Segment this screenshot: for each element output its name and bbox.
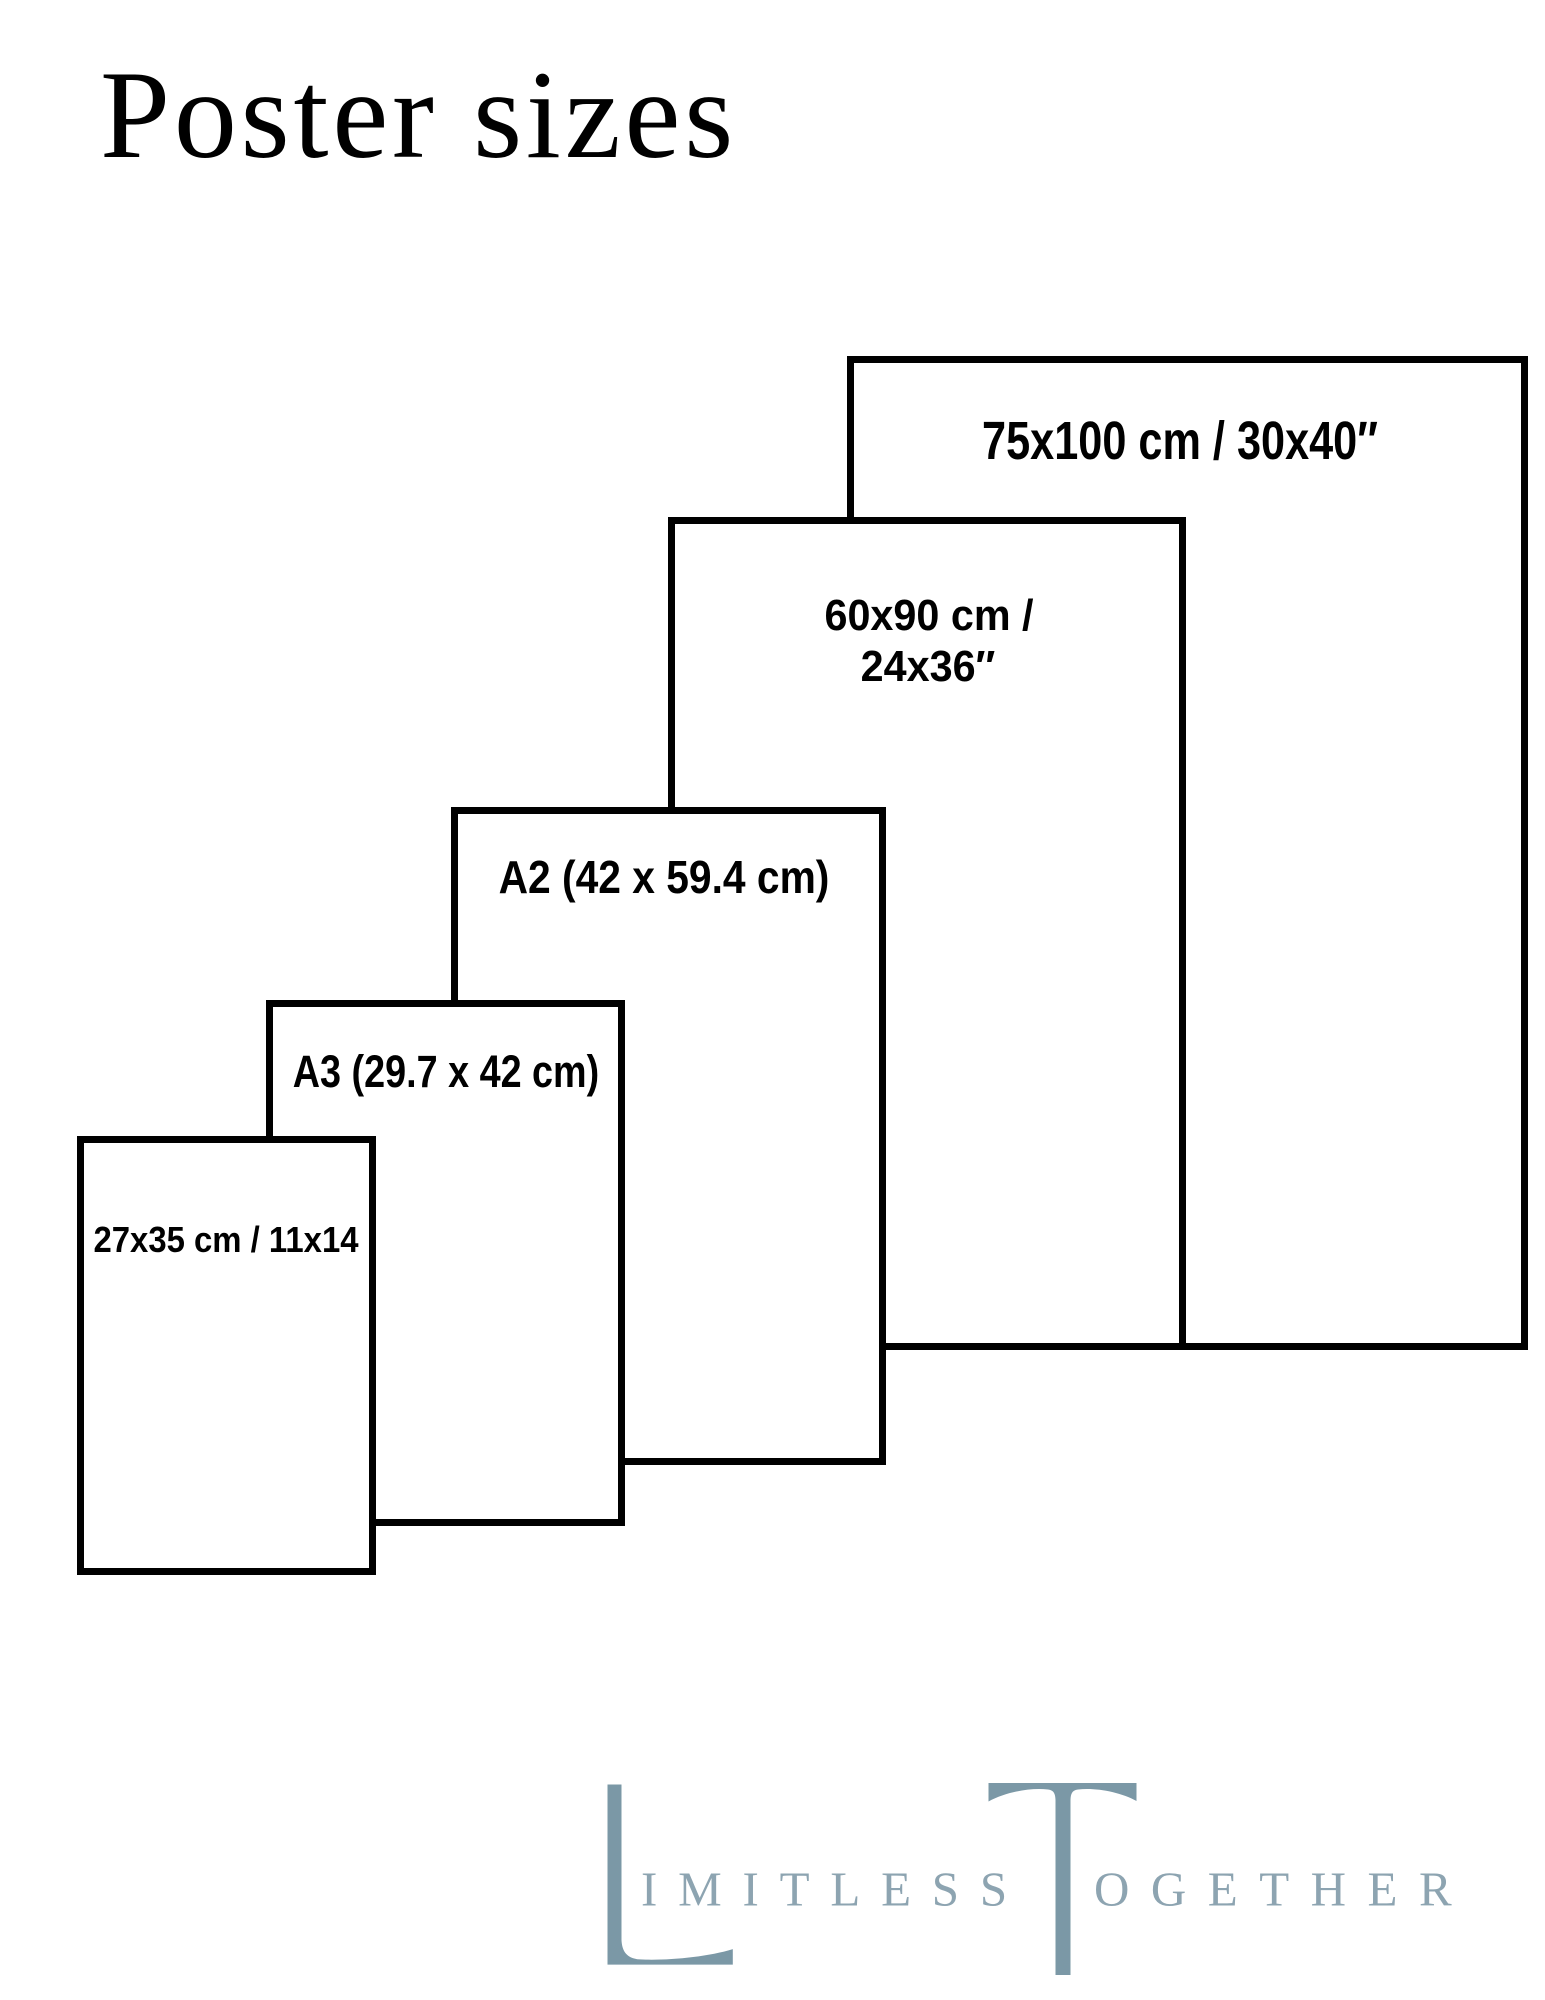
svg-text:IMITLESS: IMITLESS — [641, 1862, 1028, 1917]
svg-text:OGETHER: OGETHER — [1094, 1862, 1473, 1917]
